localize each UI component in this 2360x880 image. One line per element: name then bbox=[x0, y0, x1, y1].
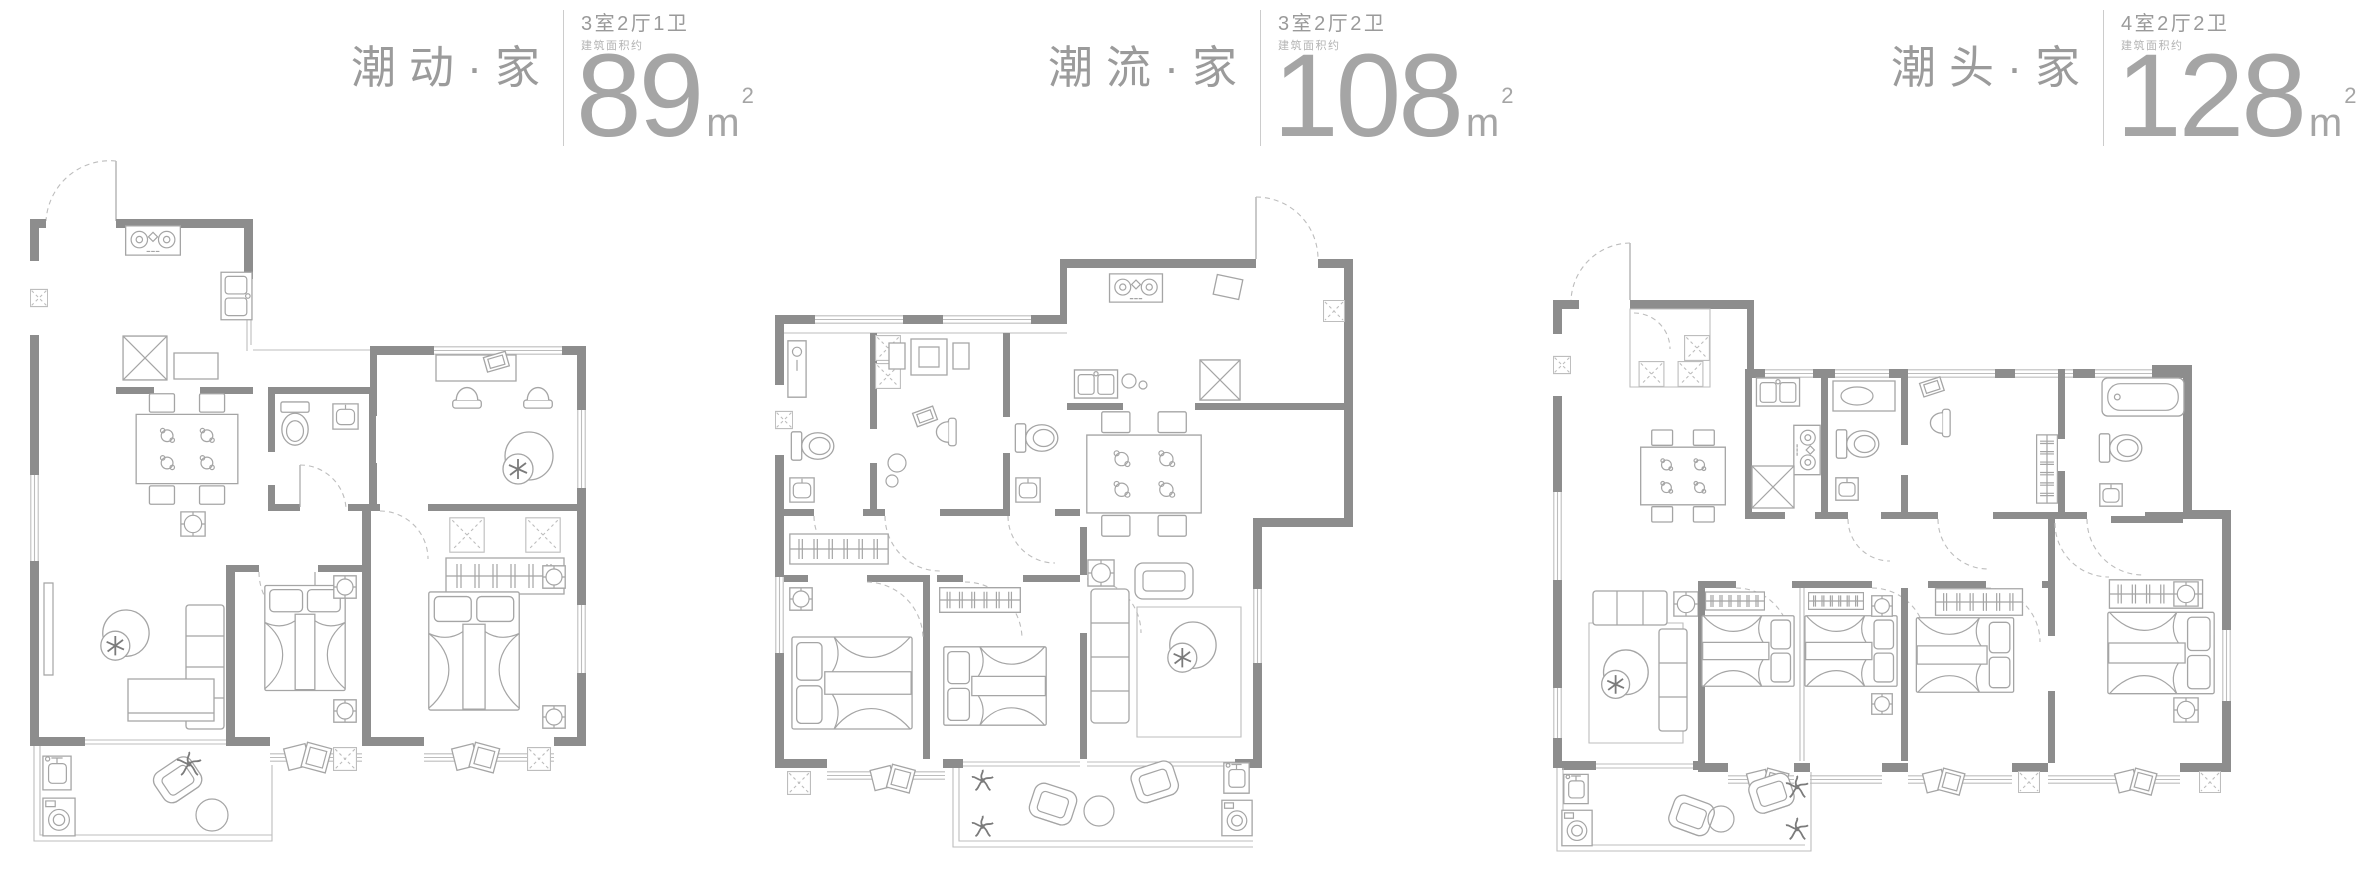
bay-windows bbox=[39, 737, 586, 773]
plan-area-unit: m bbox=[1466, 103, 1499, 143]
dining-set bbox=[136, 394, 238, 505]
plan-area-unit: m bbox=[2309, 103, 2342, 143]
bathroom-2 bbox=[2065, 378, 2191, 575]
dining-set bbox=[1641, 430, 1726, 522]
plan-area-value: 89 bbox=[576, 48, 701, 145]
plan-area-sup: 2 bbox=[1501, 83, 1513, 109]
study-room bbox=[1908, 369, 2065, 569]
bay-windows bbox=[775, 759, 1262, 794]
plan-area-value: 128 bbox=[2116, 48, 2304, 145]
bathroom bbox=[268, 387, 376, 511]
kitchen bbox=[1067, 274, 1353, 410]
dining-set bbox=[1087, 412, 1201, 536]
plan-header-128: 潮头·家 4室2厅2卫 建筑面积约 128 m 2 bbox=[1856, 2, 2356, 146]
master-bedroom bbox=[784, 534, 930, 759]
kitchen bbox=[1745, 369, 1828, 519]
plan-area-89: 89 m 2 bbox=[576, 48, 754, 145]
balcony bbox=[1557, 768, 1811, 851]
floorplan-108-drawing bbox=[775, 163, 1395, 873]
plan-area-sup: 2 bbox=[742, 83, 754, 109]
living-room bbox=[1080, 527, 1241, 759]
bedrooms bbox=[226, 511, 565, 746]
plan-area-unit: m bbox=[706, 103, 739, 143]
balcony bbox=[953, 758, 1253, 847]
plan-spec-block-89: 3室2厅1卫 建筑面积约 89 m 2 bbox=[564, 2, 754, 146]
plan-area-value: 108 bbox=[1273, 48, 1461, 145]
kitchen bbox=[116, 226, 253, 394]
balcony bbox=[34, 746, 272, 841]
plan-area-108: 108 m 2 bbox=[1273, 48, 1513, 145]
bathroom-1 bbox=[1828, 369, 1908, 561]
bedrooms bbox=[1698, 516, 2214, 767]
plan-area-128: 128 m 2 bbox=[2116, 48, 2356, 145]
door-arc bbox=[1256, 197, 1318, 259]
plan-title-108: 潮流·家 bbox=[1014, 45, 1250, 90]
floorplan-89-drawing bbox=[30, 113, 586, 863]
plan-spec-block-128: 4室2厅2卫 建筑面积约 128 m 2 bbox=[2104, 2, 2356, 146]
door-arc bbox=[1571, 243, 1630, 300]
bathroom-right bbox=[1015, 424, 1057, 502]
plan-spec-block-108: 3室2厅2卫 建筑面积约 108 m 2 bbox=[1261, 2, 1513, 146]
plan-title-128: 潮头·家 bbox=[1856, 45, 2093, 90]
living-room bbox=[44, 512, 224, 729]
door-arc bbox=[46, 161, 116, 221]
plan-area-sup: 2 bbox=[2344, 83, 2356, 109]
living-room bbox=[1562, 591, 1705, 770]
study-room bbox=[876, 333, 1010, 516]
floorplan-brochure-page: 潮动·家 3室2厅1卫 建筑面积约 89 m 2 潮流·家 3室2厅2卫 建筑面… bbox=[0, 0, 2360, 880]
study-room bbox=[370, 346, 553, 511]
plan-header-108: 潮流·家 3室2厅2卫 建筑面积约 108 m 2 bbox=[1014, 2, 1513, 146]
bedroom-2 bbox=[937, 575, 1080, 725]
floorplan-128-drawing bbox=[1553, 171, 2243, 863]
entry-closet bbox=[1630, 309, 1710, 387]
plan-title-89: 潮动·家 bbox=[228, 45, 553, 90]
